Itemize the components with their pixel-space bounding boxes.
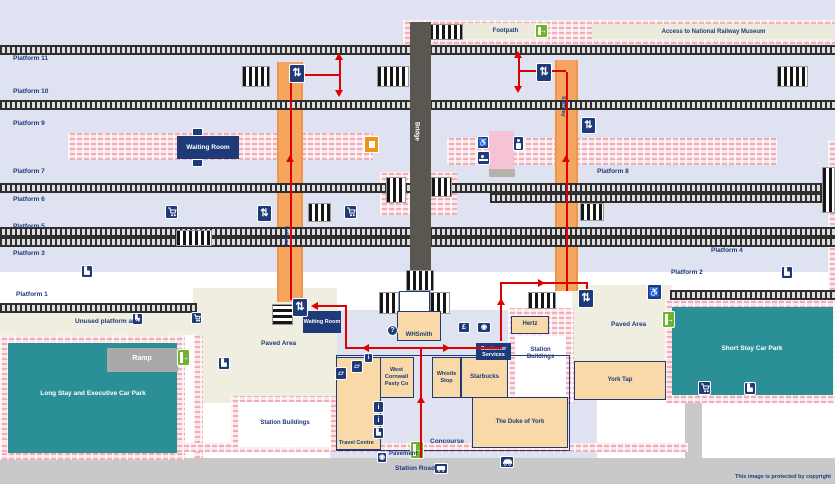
platform-5-label: Platform 5 — [13, 223, 45, 230]
platform-end-stripes — [377, 66, 409, 87]
luggage-trolley-icon — [344, 205, 357, 219]
whsmith-label: WHSmith — [406, 332, 433, 340]
platform-end-stripes — [822, 167, 835, 213]
right-edge-hatch — [828, 140, 835, 300]
route-arrow-up — [562, 155, 570, 162]
luggage-trolley-icon — [191, 312, 202, 324]
stairs-icon: ▙ — [373, 427, 384, 439]
shop-whistle-stop: Whistle Stop — [432, 357, 461, 398]
bus-stop-icon — [434, 463, 448, 474]
platform-2-label: Platform 2 — [671, 269, 703, 276]
ticket-machine-icon: i — [373, 414, 384, 426]
bridge-stairs-stripes — [386, 177, 406, 203]
route-arrow-left — [362, 344, 369, 352]
subway-right-label: Subway — [560, 96, 566, 117]
lift-icon: ⇅ — [289, 64, 305, 83]
route-line — [500, 283, 502, 341]
york-tap: York Tap — [574, 361, 666, 400]
platform-end-stripes — [429, 24, 463, 40]
station-road-label: Station Road — [395, 465, 435, 472]
zebra-crossing — [272, 304, 293, 325]
starbucks-label: Starbucks — [470, 374, 499, 382]
bridge-stairs-stripes — [431, 177, 452, 197]
help-point-icon — [364, 136, 379, 153]
travel-centre-label: Travel Centre — [339, 440, 374, 447]
lift-icon: ⇅ — [257, 205, 272, 222]
customer-services: Customer Services — [476, 343, 511, 360]
cash-machine-icon: £ — [458, 322, 470, 333]
shop-whsmith: WHSmith — [397, 311, 441, 341]
route-arrow-down — [514, 86, 522, 93]
platform-9-label: Platform 9 — [13, 120, 45, 127]
route-arrow-up — [497, 298, 505, 305]
concourse-label: Concourse — [430, 438, 464, 445]
baby-change-icon — [477, 151, 490, 165]
entrance-icon-footpath: → — [535, 24, 548, 38]
platform-end-stripes — [580, 203, 604, 221]
waiting-room-bottom-label: Waiting Room — [304, 319, 341, 325]
accessible-toilet-icon: ♿ — [477, 136, 489, 149]
duke-of-york-label: The Duke of York — [496, 419, 545, 427]
route-arrow-left — [311, 302, 318, 310]
route-arrow-right — [538, 279, 545, 287]
stairs-icon: ▙ — [81, 265, 93, 278]
museum-access-band: Access to National Railway Museum — [592, 24, 835, 39]
stairs-icon: ▙ — [218, 357, 230, 370]
station-map: Bridge Footpath Access to National Railw… — [0, 0, 835, 484]
paved-area-right-label: Paved Area — [611, 321, 646, 328]
taxi-rank-icon — [500, 456, 514, 468]
museum-access-label: Access to National Railway Museum — [662, 29, 766, 35]
toilets-building — [489, 131, 514, 171]
shop-hertz: Hertz — [511, 316, 549, 334]
track-3b — [490, 193, 835, 203]
route-line — [339, 60, 341, 90]
ticket-machine-icon: i — [373, 401, 384, 413]
wheelchair-access-icon: ♿ — [647, 284, 662, 300]
photo-booth-icon: ◉ — [477, 322, 491, 333]
platform-3-label: Platform 3 — [13, 250, 45, 257]
information-icon: ? — [387, 325, 398, 336]
route-arrow-up — [286, 155, 294, 162]
short-stay-label: Short Stay Car Park — [692, 345, 812, 352]
long-stay-label: Long Stay and Executive Car Park — [18, 390, 168, 397]
platform-4-label: Platform 4 — [711, 247, 743, 254]
barrow-crossing-stripes — [176, 230, 212, 246]
waiting-room-door-marker — [192, 128, 203, 136]
platform-end-stripes — [308, 203, 331, 222]
entrance-arrow: → — [539, 27, 547, 35]
lift-icon: ⇅ — [578, 289, 594, 308]
york-tap-label: York Tap — [608, 377, 633, 385]
platform-8-label: Platform 8 — [597, 168, 629, 175]
stairs-icon: ▙ — [781, 266, 793, 279]
route-line — [518, 58, 520, 86]
route-line — [290, 76, 292, 300]
hertz-label: Hertz — [522, 321, 537, 329]
ticket-machine-icon: i — [364, 353, 373, 363]
ramp-label: Ramp — [112, 355, 172, 363]
footbridge — [410, 22, 431, 290]
bridge-stair-landing — [399, 291, 430, 312]
whistle-stop-label: Whistle Stop — [433, 371, 460, 385]
waiting-room-bottom: Waiting Room — [303, 311, 341, 333]
stairs-stripes-right — [528, 292, 556, 309]
waiting-room-top: Waiting Room — [177, 136, 239, 159]
platform-6-label: Platform 6 — [13, 196, 45, 203]
entrance-icon-ramp: → — [177, 349, 190, 366]
route-line — [315, 305, 347, 307]
lift-icon: ⇅ — [581, 117, 596, 134]
footpath-label: Footpath — [493, 28, 519, 34]
toilets-icon — [513, 136, 524, 151]
track-7 — [670, 290, 835, 300]
bridge-stair-left — [379, 292, 399, 314]
bridge-foot-stripes — [406, 270, 434, 291]
shop-west-cornwall: West Cornwall Pasty Co — [379, 357, 414, 398]
luggage-trolley-icon — [165, 205, 178, 219]
pavement-label: Pavement — [389, 451, 417, 458]
platform-11-label: Platform 11 — [13, 55, 48, 62]
route-line — [420, 348, 422, 458]
lift-icon: ⇅ — [292, 298, 308, 317]
route-line — [345, 306, 347, 349]
waiting-room-top-label: Waiting Room — [186, 144, 229, 151]
post-box-icon: ◉ — [377, 452, 387, 463]
route-line — [566, 72, 568, 291]
lift-icon: ⇅ — [536, 63, 552, 82]
west-cornwall-label: West Cornwall Pasty Co — [380, 367, 413, 388]
entrance-arrow: → — [181, 354, 189, 362]
route-arrow-down — [335, 90, 343, 97]
platform-end-stripes — [242, 66, 270, 87]
path-hatch-left — [193, 335, 203, 458]
toilets-building-base — [489, 169, 515, 177]
entrance-arrow: → — [666, 316, 674, 324]
station-buildings-left-label: Station Buildings — [241, 420, 329, 427]
platform-1-label: Platform 1 — [16, 291, 48, 298]
ticket-office-icon: ▱ — [351, 360, 363, 373]
route-arrow-up — [335, 53, 343, 60]
track-6 — [0, 303, 197, 313]
subway-left-label: Subway — [283, 226, 289, 247]
platform-10-label: Platform 10 — [13, 88, 48, 95]
entrance-icon-short-stay: → — [662, 311, 675, 328]
copyright-notice: This image is protected by copyright — [735, 474, 831, 480]
ticket-office-icon: ▱ — [335, 367, 347, 380]
unused-platform-label: Unused platform area — [75, 318, 142, 325]
route-arrow-up — [514, 51, 522, 58]
shop-duke-of-york: The Duke of York — [472, 397, 568, 448]
route-arrow-right — [443, 344, 450, 352]
luggage-trolley-icon — [698, 381, 711, 395]
paved-area-left-label: Paved Area — [261, 340, 296, 347]
waiting-room-door-marker — [192, 159, 203, 167]
bridge-label: Bridge — [413, 122, 420, 141]
shop-starbucks: Starbucks — [461, 357, 508, 398]
platform-end-stripes — [777, 66, 808, 87]
person-glyph — [516, 139, 521, 149]
platform-7-label: Platform 7 — [13, 168, 45, 175]
stairs-icon: ▙ — [744, 382, 756, 395]
baby-change-glyph — [479, 155, 488, 161]
route-arrow-up — [417, 396, 425, 403]
